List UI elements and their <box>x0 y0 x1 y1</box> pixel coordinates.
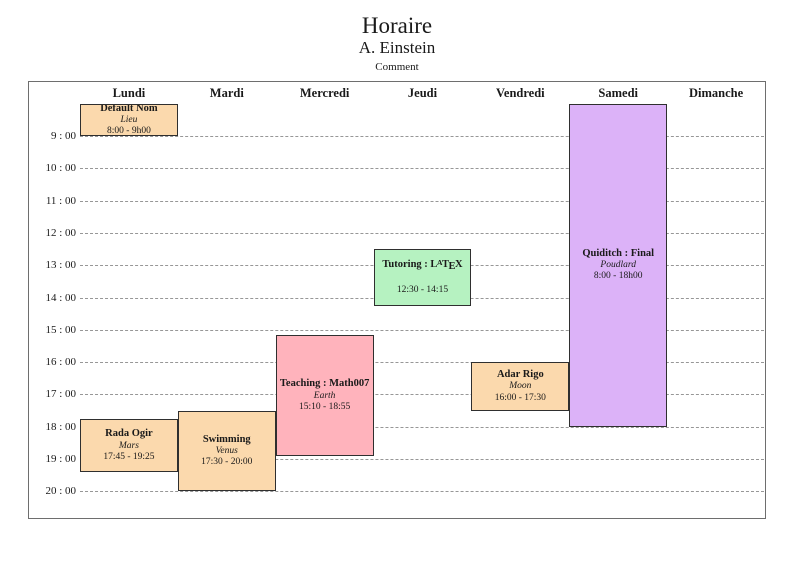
hour-label: 19 : 00 <box>29 453 76 465</box>
event-title: Rada Ogir <box>105 428 153 440</box>
event-location: Lieu <box>120 115 137 126</box>
event-time-range: 12:30 - 14:15 <box>397 285 448 296</box>
event-title: Quiditch : Final <box>582 248 654 260</box>
page-title: Horaire <box>0 14 794 38</box>
event-title: Default Nom <box>100 104 157 115</box>
event-swimming: SwimmingVenus17:30 - 20:00 <box>178 411 276 492</box>
hour-label: 20 : 00 <box>29 485 76 497</box>
day-header-lundi: Lundi <box>113 86 146 101</box>
hour-label: 11 : 00 <box>29 195 76 207</box>
title-block: Horaire A. Einstein Comment <box>0 14 794 75</box>
event-time-range: 17:30 - 20:00 <box>201 457 252 468</box>
day-header-mardi: Mardi <box>210 86 244 101</box>
day-header-vendredi: Vendredi <box>496 86 545 101</box>
hour-label: 15 : 00 <box>29 324 76 336</box>
event-location: Moon <box>509 381 531 392</box>
event-title: Adar Rigo <box>497 369 544 381</box>
event-title: Tutoring : LATEX <box>382 259 462 274</box>
event-time-range: 17:45 - 19:25 <box>103 452 154 463</box>
event-time-range: 15:10 - 18:55 <box>299 402 350 413</box>
event-location: Mars <box>119 441 139 452</box>
event-adar-rigo: Adar RigoMoon16:00 - 17:30 <box>471 362 569 410</box>
event-teaching-math007: Teaching : Math007Earth15:10 - 18:55 <box>276 335 374 456</box>
event-rada-ogir: Rada OgirMars17:45 - 19:25 <box>80 419 178 473</box>
day-header-dimanche: Dimanche <box>689 86 743 101</box>
day-header-samedi: Samedi <box>598 86 638 101</box>
hour-gridline <box>80 491 764 492</box>
hour-label: 9 : 00 <box>29 130 76 142</box>
event-time-range: 16:00 - 17:30 <box>495 393 546 404</box>
event-tutoring-latex: Tutoring : LATEX12:30 - 14:15 <box>374 249 472 306</box>
event-title: Swimming <box>203 434 251 446</box>
event-time-range: 8:00 - 9h00 <box>107 126 151 136</box>
event-title: Teaching : Math007 <box>280 378 369 390</box>
timetable-frame: LundiMardiMercrediJeudiVendrediSamediDim… <box>28 81 766 519</box>
day-header-mercredi: Mercredi <box>300 86 350 101</box>
event-location: Venus <box>216 446 238 457</box>
page-author: A. Einstein <box>0 38 794 58</box>
event-location: Earth <box>314 391 336 402</box>
event-default-nom: Default NomLieu8:00 - 9h00 <box>80 104 178 136</box>
event-time-range: 8:00 - 18h00 <box>594 271 643 282</box>
page: Horaire A. Einstein Comment LundiMardiMe… <box>0 0 794 561</box>
hour-label: 17 : 00 <box>29 388 76 400</box>
hour-label: 12 : 00 <box>29 227 76 239</box>
hour-label: 14 : 00 <box>29 292 76 304</box>
page-comment: Comment <box>0 59 794 76</box>
hour-label: 13 : 00 <box>29 259 76 271</box>
hour-label: 18 : 00 <box>29 421 76 433</box>
day-header-jeudi: Jeudi <box>408 86 437 101</box>
event-quiditch-final: Quiditch : FinalPoudlard8:00 - 18h00 <box>569 104 667 427</box>
event-location: Poudlard <box>600 260 636 271</box>
hour-label: 10 : 00 <box>29 162 76 174</box>
hour-label: 16 : 00 <box>29 356 76 368</box>
